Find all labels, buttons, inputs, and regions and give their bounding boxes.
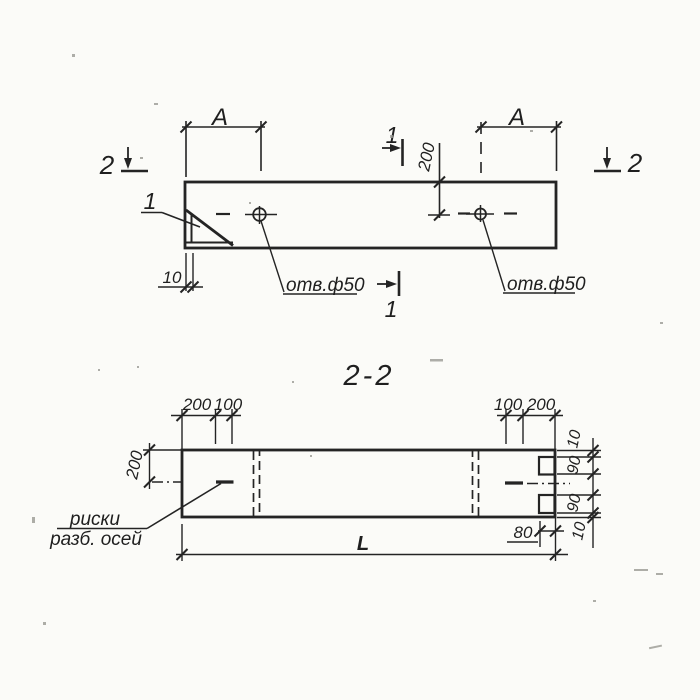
dim-10-right-bottom-text: 10 (569, 520, 589, 541)
dim-90-right-bottom-text: 90 (564, 492, 584, 513)
dim-200-plan: 200 (414, 140, 450, 220)
hole-label-right: отв.ф50 (483, 220, 586, 295)
dim-10-text: 10 (163, 268, 182, 287)
dim-200-section-text: 200 (122, 448, 147, 481)
dim-right-stack-group: 10 90 90 10 (557, 428, 601, 548)
plan-beam-rect (185, 182, 556, 248)
detail-callout-text: 1 (144, 188, 157, 214)
section-beam-rect (182, 450, 555, 517)
notch-bottom-rect (539, 495, 555, 513)
plan-hole-right (458, 205, 517, 222)
marker-2-left-text: 2 (99, 150, 115, 180)
section-centerline-and-axis-marks (152, 482, 570, 484)
section-marker-1-bottom: 1 (377, 271, 399, 322)
section-marker-2-right: 2 (594, 147, 643, 178)
section-marker-2-left: 2 (99, 147, 148, 180)
section-marker-1-top: 1 (382, 122, 403, 166)
hole-label-left: отв.ф50 (261, 221, 365, 296)
plan-hole-left (216, 206, 277, 224)
hole-label-right-text: отв.ф50 (507, 274, 586, 295)
dim-a-left: A (181, 104, 267, 177)
plan-beam-outline (185, 182, 556, 248)
dim-a-right-text: A (507, 104, 525, 131)
dim-100-top-right-text: 100 (494, 395, 523, 414)
axis-note-line1: риски (69, 509, 121, 530)
section-title: 2-2 (343, 360, 395, 392)
dim-10-plan: 10 (158, 253, 203, 293)
dim-200-top-left-text: 200 (182, 395, 212, 414)
dim-80-text: 80 (514, 523, 533, 542)
drawing-sheet: A A 200 1 1 2 (0, 0, 700, 700)
dim-top-right-group: 100 200 (494, 395, 563, 449)
dim-length-group: L (176, 517, 568, 561)
section-title-text: 2-2 (343, 360, 395, 392)
notch-top-rect (539, 457, 555, 475)
hole-label-left-text: отв.ф50 (286, 275, 365, 296)
plan-corner-chamfer-detail (186, 210, 233, 246)
axis-note-line2: разб. осей (49, 529, 142, 550)
marker-2-right-text: 2 (627, 148, 643, 178)
section-hidden-hole-right (473, 451, 479, 516)
dim-a-left-text: A (210, 104, 228, 131)
technical-drawing: A A 200 1 1 2 (0, 0, 700, 700)
dim-200-plan-text: 200 (414, 140, 439, 173)
dim-100-top-left-text: 100 (214, 395, 243, 414)
section-hidden-hole-left (254, 451, 260, 516)
dim-length-text: L (357, 533, 369, 555)
section-notches (539, 457, 555, 513)
dim-200-top-right-text: 200 (526, 395, 556, 414)
dim-90-right-top-text: 90 (564, 454, 584, 475)
scan-artifacts (32, 54, 663, 649)
marker-1-bottom-text: 1 (385, 296, 398, 322)
section-beam-outline (182, 450, 555, 517)
dim-a-right: A (476, 104, 563, 173)
dim-10-right-top-text: 10 (564, 428, 584, 449)
dim-top-left-group: 200 100 (171, 395, 243, 449)
